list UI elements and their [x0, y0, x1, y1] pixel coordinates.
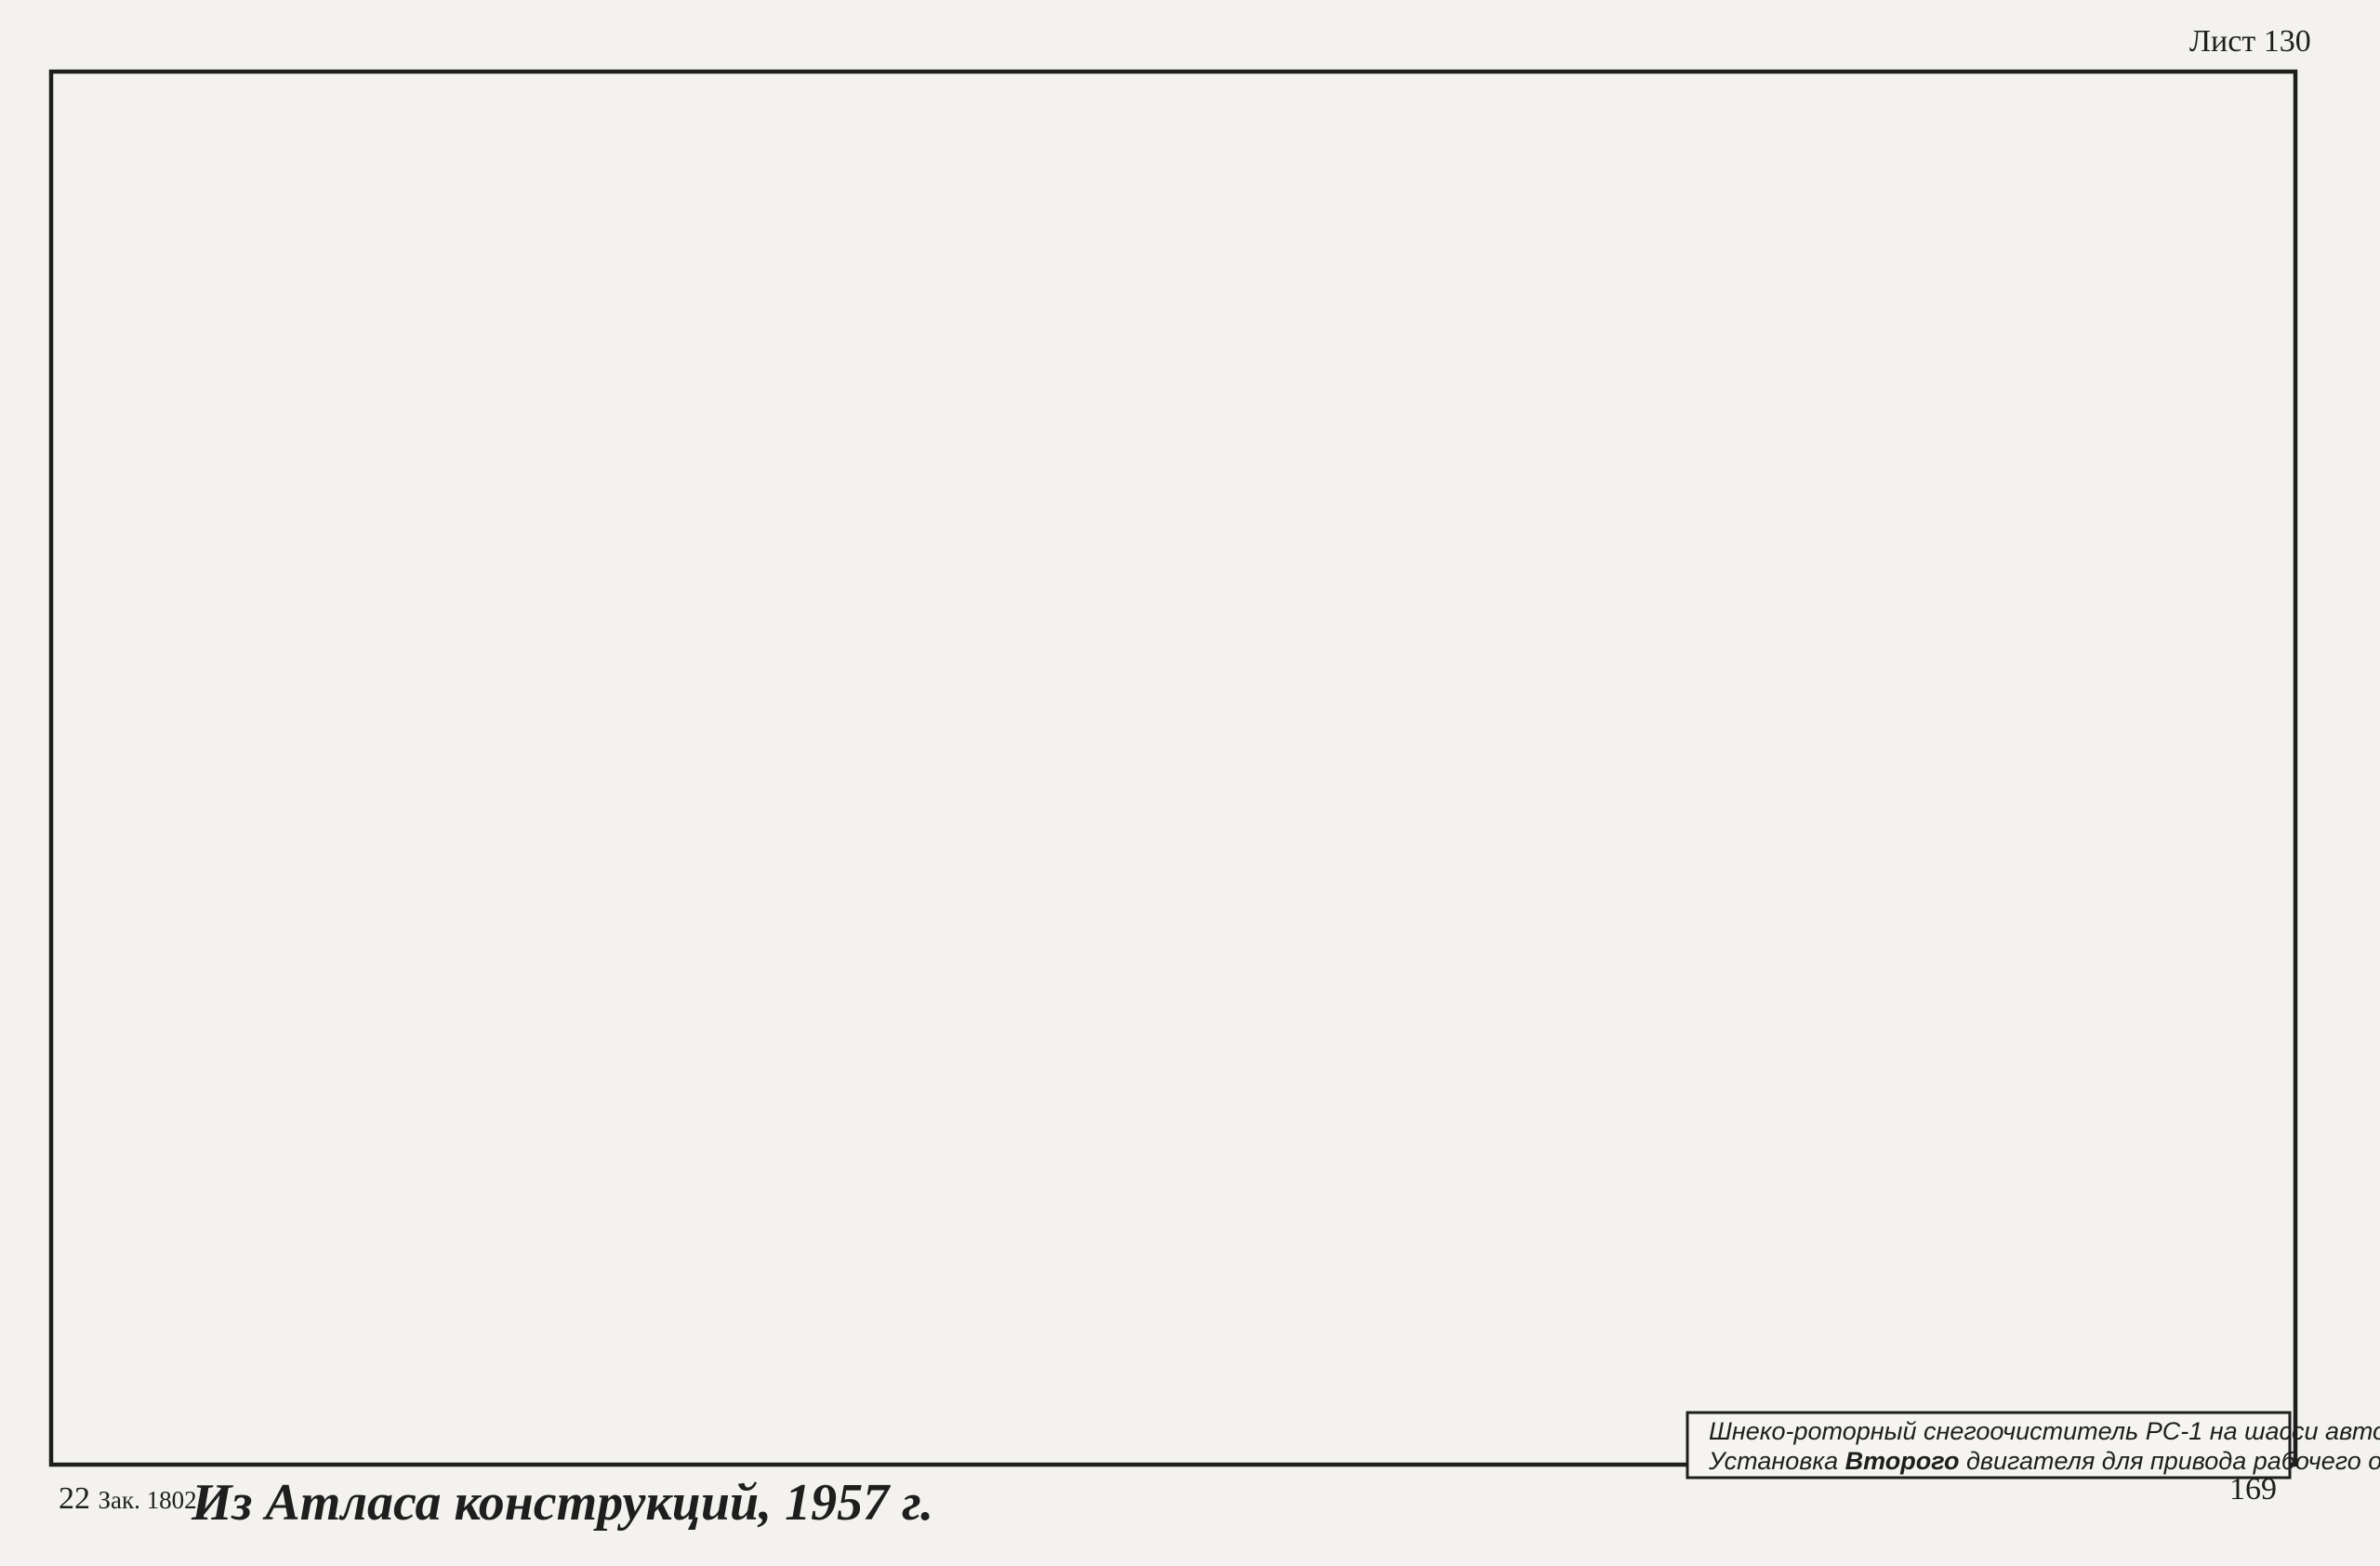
svg-text:Установка Второго двигателя: Установка Второго двигателя для привода … [1708, 1447, 2380, 1475]
svg-text:Из Атласа конструкций, 1957 г.: Из Атласа конструкций, 1957 г. [191, 1474, 933, 1532]
svg-text:22 Зак. 1802: 22 Зак. 1802 [59, 1481, 197, 1516]
svg-text:Лист 130: Лист 130 [2189, 24, 2311, 59]
svg-text:Шнеко-роторный снегоочистител: Шнеко-роторный снегоочиститель РС-1 на ш… [1709, 1417, 2380, 1445]
